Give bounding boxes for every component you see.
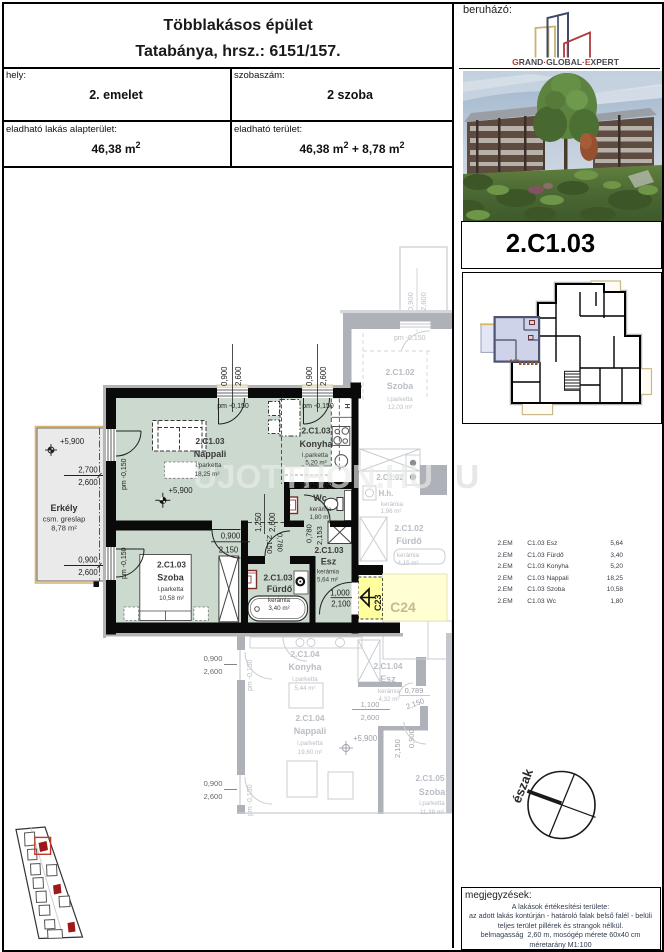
svg-text:Erkély: Erkély [50,503,77,513]
svg-text:2,150: 2,150 [265,535,274,554]
svg-text:l.parketta: l.parketta [419,800,445,807]
svg-text:2,600: 2,600 [419,292,428,311]
svg-text:0,900: 0,900 [78,556,98,565]
svg-text:2.C1.05: 2.C1.05 [415,773,444,783]
svg-text:2.C1.03: 2.C1.03 [263,573,292,583]
svg-text:2,600: 2,600 [361,713,380,722]
svg-text:kerámia: kerámia [309,506,332,513]
svg-text:2.C1.04: 2.C1.04 [295,713,324,723]
svg-text:l.parketta: l.parketta [387,396,413,403]
svg-text:1,100: 1,100 [361,700,380,709]
svg-text:U: U [455,459,479,496]
svg-text:kerámia: kerámia [378,688,401,695]
svg-text:2,153: 2,153 [315,526,324,545]
svg-text:0,900: 0,900 [305,366,314,386]
svg-text:l.parketta: l.parketta [297,740,323,747]
svg-text:2,600: 2,600 [78,568,98,577]
svg-text:3,40 m²: 3,40 m² [268,605,289,612]
svg-text:l.parketta: l.parketta [196,462,222,469]
svg-text:C23: C23 [373,594,383,611]
svg-text:2,600: 2,600 [268,512,277,532]
svg-text:2,600: 2,600 [204,667,223,676]
svg-text:0,789: 0,789 [405,686,424,695]
svg-text:H: H [343,404,350,409]
svg-text:l.parketta: l.parketta [292,676,318,683]
svg-text:Konyha: Konyha [288,662,322,672]
svg-text:pm -0,150: pm -0,150 [121,547,128,579]
svg-text:4,32 m²: 4,32 m² [379,696,400,703]
svg-text:2,600: 2,600 [234,366,243,386]
svg-text:2,150: 2,150 [219,546,239,555]
svg-text:pm -0,150: pm -0,150 [217,403,249,410]
svg-text:2.C1.03: 2.C1.03 [301,426,330,436]
svg-text:Konyha: Konyha [299,439,333,449]
svg-text:2,150: 2,150 [393,739,402,758]
svg-text:0,900: 0,900 [221,532,241,541]
svg-text:1,000: 1,000 [330,589,350,598]
svg-text:5,44 m²: 5,44 m² [295,685,316,692]
svg-text:5,20 m²: 5,20 m² [305,460,326,467]
svg-text:2.C1.02: 2.C1.02 [394,523,423,533]
svg-text:2,100: 2,100 [331,600,351,609]
svg-text:2,600: 2,600 [319,366,328,386]
svg-text:5,64 m²: 5,64 m² [317,577,338,584]
svg-text:1,250: 1,250 [254,512,263,532]
svg-text:1,96 m²: 1,96 m² [381,508,402,515]
svg-text:pm -0,150: pm -0,150 [121,458,128,490]
svg-text:2,700: 2,700 [78,466,98,475]
svg-text:pm -0,150: pm -0,150 [302,403,334,410]
svg-text:2.C1.03: 2.C1.03 [314,545,343,555]
svg-text:0,900: 0,900 [406,292,415,311]
svg-text:kerámia: kerámia [397,552,420,559]
svg-text:0,900: 0,900 [204,654,223,663]
svg-text:19,60 m²: 19,60 m² [298,749,322,756]
svg-text:+5,900: +5,900 [60,437,85,446]
svg-text:csm. greslap: csm. greslap [43,515,86,524]
svg-text:Szoba: Szoba [157,573,184,583]
svg-text:0,780: 0,780 [305,524,314,543]
svg-text:l.parketta: l.parketta [158,586,184,593]
svg-text:12,03 m²: 12,03 m² [388,404,412,411]
svg-text:kerámia: kerámia [268,597,291,604]
svg-text:Fürdő: Fürdő [267,584,293,594]
svg-text:Wc: Wc [313,493,327,503]
svg-text:Fürdő: Fürdő [396,536,422,546]
svg-text:10,58 m²: 10,58 m² [159,595,184,602]
svg-text:kerámia: kerámia [381,501,404,508]
svg-text:észak: észak [509,766,536,805]
svg-text:0,780: 0,780 [276,533,285,552]
svg-text:0,900: 0,900 [204,779,223,788]
svg-text:Nappali: Nappali [194,449,227,459]
svg-text:Nappali: Nappali [294,726,327,736]
svg-text:2,600: 2,600 [204,792,223,801]
svg-text:2,600: 2,600 [78,478,98,487]
svg-text:2.C1.03: 2.C1.03 [157,560,186,570]
svg-text:2.C1.03: 2.C1.03 [301,481,333,491]
svg-text:2.C1.03: 2.C1.03 [195,436,224,446]
svg-text:C24: C24 [390,599,416,615]
svg-text:+5,900: +5,900 [353,734,378,743]
svg-text:2.C1.02: 2.C1.02 [385,367,414,377]
svg-text:l.parketta: l.parketta [302,452,328,459]
svg-text:0,900: 0,900 [220,366,229,386]
svg-text:2.C1.04: 2.C1.04 [373,661,402,671]
svg-text:Esz: Esz [321,557,337,567]
svg-text:11,38 m²: 11,38 m² [420,809,444,816]
svg-text:8,78 m²: 8,78 m² [51,524,77,533]
svg-text:kerámia: kerámia [317,569,340,576]
svg-text:Szoba: Szoba [387,381,414,391]
svg-text:Szoba: Szoba [419,787,446,797]
svg-text:+5,900: +5,900 [169,486,194,495]
svg-text:1,80 m²: 1,80 m² [310,514,331,521]
svg-text:18,25 m²: 18,25 m² [195,471,220,478]
